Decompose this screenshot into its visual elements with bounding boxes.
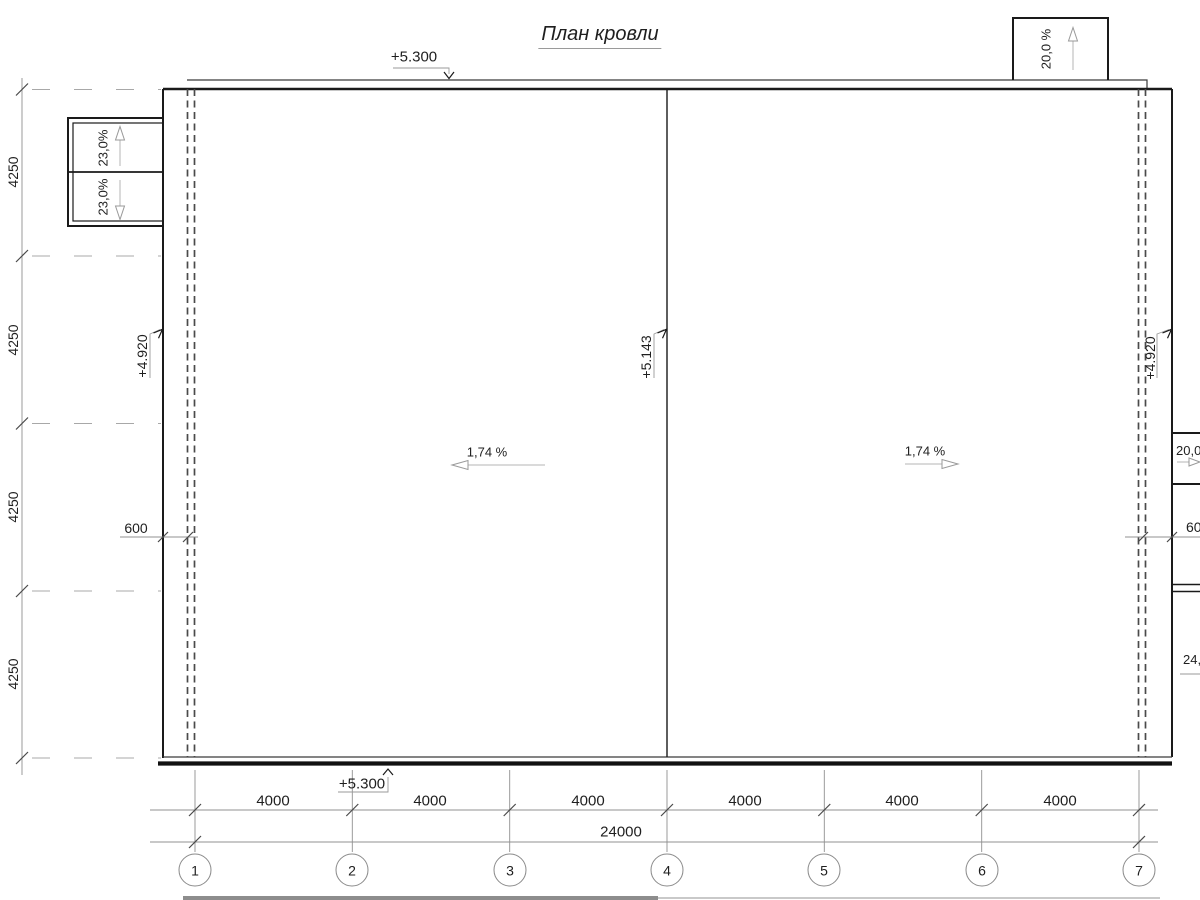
axis-circle-5: 5 — [808, 854, 841, 887]
linework-svg — [0, 0, 1200, 900]
slope-label-topbox: 20,0 % — [1040, 29, 1053, 69]
axis-number-4: 4 — [663, 862, 671, 878]
elevation-label-right: +4.920 — [1143, 336, 1157, 379]
slope-arrow-heads — [116, 28, 1200, 470]
axis-number-7: 7 — [1135, 862, 1143, 878]
axis-circle-4: 4 — [651, 854, 684, 887]
roof-plan-canvas: План кровли +5.300 +5.300 +4.920 +5.143 … — [0, 0, 1200, 900]
dim-label-row-1: 4250 — [6, 156, 20, 187]
dim-label-bay-5: 4000 — [885, 794, 918, 809]
elevation-arrowheads — [154, 72, 1172, 775]
elevation-label-ridge: +5.143 — [639, 335, 653, 378]
slope-label-rightbox: 20,0 % — [1176, 444, 1200, 457]
axis-number-2: 2 — [348, 862, 356, 878]
axis-circle-3: 3 — [494, 854, 527, 887]
dim-label-row-2: 4250 — [6, 324, 20, 355]
slope-label-right-roof: 1,74 % — [905, 445, 945, 458]
elevation-leaders — [150, 68, 1200, 792]
dimension-ticks — [16, 84, 1177, 849]
dim-label-bay-4: 4000 — [728, 794, 761, 809]
slope-label-canopy-upper: 23,0% — [97, 130, 110, 167]
dim-label-bay-1: 4000 — [256, 794, 289, 809]
slope-arrow-shafts — [120, 41, 1189, 465]
bottom-dimension-lines — [150, 770, 1158, 852]
axis-number-5: 5 — [820, 862, 828, 878]
topbox-outline — [1013, 18, 1108, 80]
dim-label-parapet-right: 600 — [1186, 520, 1200, 534]
slope-label-left-roof: 1,74 % — [467, 446, 507, 459]
axis-circle-1: 1 — [179, 854, 212, 887]
elevation-label-top: +5.300 — [391, 50, 437, 65]
dim-label-bay-2: 4000 — [413, 794, 446, 809]
dim-label-parapet-left: 600 — [124, 521, 147, 535]
slope-label-rightbox-lower: 24,0 % — [1183, 653, 1200, 666]
axis-number-1: 1 — [191, 862, 199, 878]
axis-circle-6: 6 — [966, 854, 999, 887]
building-outline — [158, 80, 1172, 764]
elevation-label-left: +4.920 — [135, 334, 149, 377]
slope-label-canopy-lower: 23,0% — [97, 179, 110, 216]
canopy-outline — [68, 118, 163, 226]
left-dimension-chain — [22, 78, 161, 775]
axis-number-3: 3 — [506, 862, 514, 878]
dim-label-row-3: 4250 — [6, 491, 20, 522]
dim-label-total-width: 24000 — [600, 825, 642, 840]
dim-label-row-4: 4250 — [6, 658, 20, 689]
axis-circle-2: 2 — [336, 854, 369, 887]
drawing-title: План кровли — [538, 23, 661, 49]
dim-label-bay-3: 4000 — [571, 794, 604, 809]
axis-circle-7: 7 — [1123, 854, 1156, 887]
bottom-edge-artifact — [183, 896, 1160, 900]
elevation-label-bottom: +5.300 — [339, 777, 385, 792]
axis-number-6: 6 — [978, 862, 986, 878]
dim-label-bay-6: 4000 — [1043, 794, 1076, 809]
